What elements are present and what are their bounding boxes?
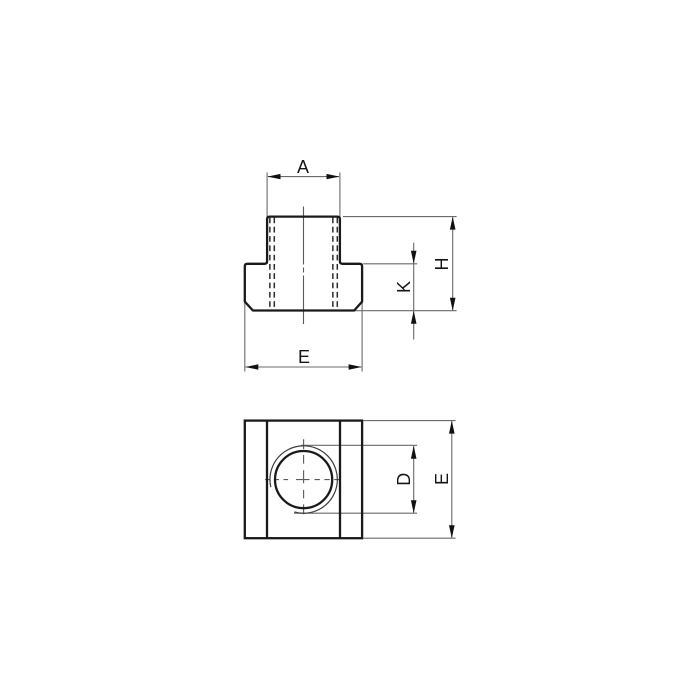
svg-text:A: A (297, 157, 309, 177)
svg-text:H: H (432, 258, 452, 271)
svg-text:E: E (432, 473, 452, 485)
svg-text:K: K (394, 281, 414, 293)
svg-text:D: D (394, 473, 414, 486)
svg-text:E: E (298, 347, 310, 367)
